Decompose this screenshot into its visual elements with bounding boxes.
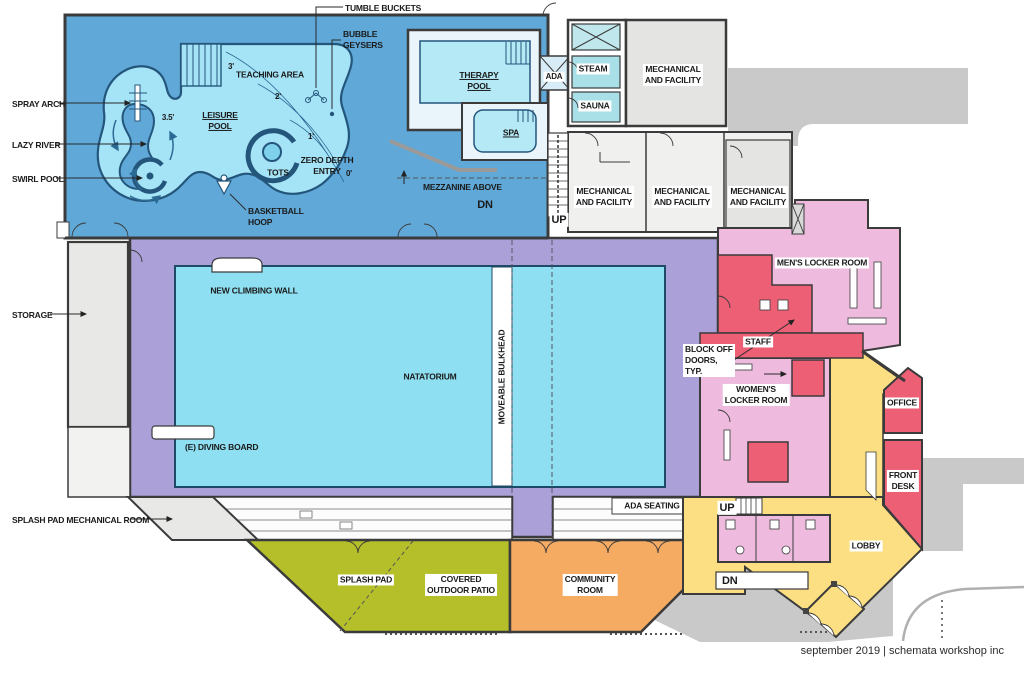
label-mezzanine-above: MEZZANINE ABOVE: [423, 182, 502, 193]
label-staff: STAFF: [743, 336, 773, 347]
label-up-1: UP: [550, 213, 569, 227]
label-moveable-bulkhead: MOVEABLE BULKHEAD: [496, 330, 507, 425]
label-dn-1: DN: [477, 198, 493, 212]
label-front-desk: FRONT DESK: [887, 470, 919, 492]
label-depth-1: 1': [308, 132, 314, 142]
title-block-footer: september 2019 | schemata workshop inc: [801, 645, 1004, 657]
label-basketball-hoop: BASKETBALL HOOP: [248, 206, 304, 228]
label-womens-locker: WOMEN'S LOCKER ROOM: [723, 384, 790, 406]
label-diving-board: (E) DIVING BOARD: [185, 442, 258, 453]
label-mechanical-4: MECHANICAL AND FACILITY: [728, 186, 788, 208]
label-ada: ADA: [544, 72, 565, 82]
floor-plan: TUMBLE BUCKETS BUBBLE GEYSERS TEACHING A…: [0, 0, 1024, 682]
label-steam: STEAM: [577, 63, 610, 74]
label-bubble-geysers: BUBBLE GEYSERS: [343, 29, 383, 51]
label-mens-locker: MEN'S LOCKER ROOM: [775, 257, 869, 268]
label-sauna: SAUNA: [578, 100, 611, 111]
label-block-off-doors: BLOCK OFF DOORS, TYP.: [683, 344, 735, 377]
label-community-room: COMMUNITY ROOM: [563, 574, 618, 596]
label-storage: STORAGE: [12, 310, 52, 321]
label-teaching-area: TEACHING AREA: [236, 69, 304, 80]
label-natatorium: NATATORIUM: [403, 371, 456, 382]
label-covered-patio: COVERED OUTDOOR PATIO: [425, 574, 497, 596]
label-dn-2: DN: [722, 574, 738, 588]
label-depth-2: 2': [275, 92, 281, 102]
label-up-2: UP: [718, 501, 737, 515]
label-depth-3-5: 3.5': [162, 113, 174, 123]
label-mechanical-1: MECHANICAL AND FACILITY: [643, 64, 703, 86]
label-mechanical-2: MECHANICAL AND FACILITY: [574, 186, 634, 208]
label-tots: TOTS: [267, 167, 289, 178]
label-leisure-pool: LEISURE POOL: [202, 110, 237, 132]
label-lazy-river: LAZY RIVER: [12, 140, 60, 151]
label-lobby: LOBBY: [850, 540, 883, 551]
label-ada-seating: ADA SEATING: [624, 500, 679, 511]
label-office: OFFICE: [885, 397, 919, 408]
label-mechanical-3: MECHANICAL AND FACILITY: [652, 186, 712, 208]
label-spa: SPA: [503, 127, 519, 138]
label-splash-pad-mech: SPLASH PAD MECHANICAL ROOM: [12, 515, 149, 526]
label-new-climbing-wall: NEW CLIMBING WALL: [210, 285, 297, 296]
label-therapy-pool: THERAPY POOL: [459, 70, 498, 92]
label-splash-pad: SPLASH PAD: [338, 574, 394, 585]
label-depth-3: 3': [228, 62, 234, 72]
label-depth-0: 0': [346, 169, 352, 179]
label-spray-arch: SPRAY ARCH: [12, 99, 65, 110]
label-swirl-pool: SWIRL POOL: [12, 174, 64, 185]
plan-labels: TUMBLE BUCKETS BUBBLE GEYSERS TEACHING A…: [0, 0, 1024, 682]
label-tumble-buckets: TUMBLE BUCKETS: [345, 3, 421, 14]
